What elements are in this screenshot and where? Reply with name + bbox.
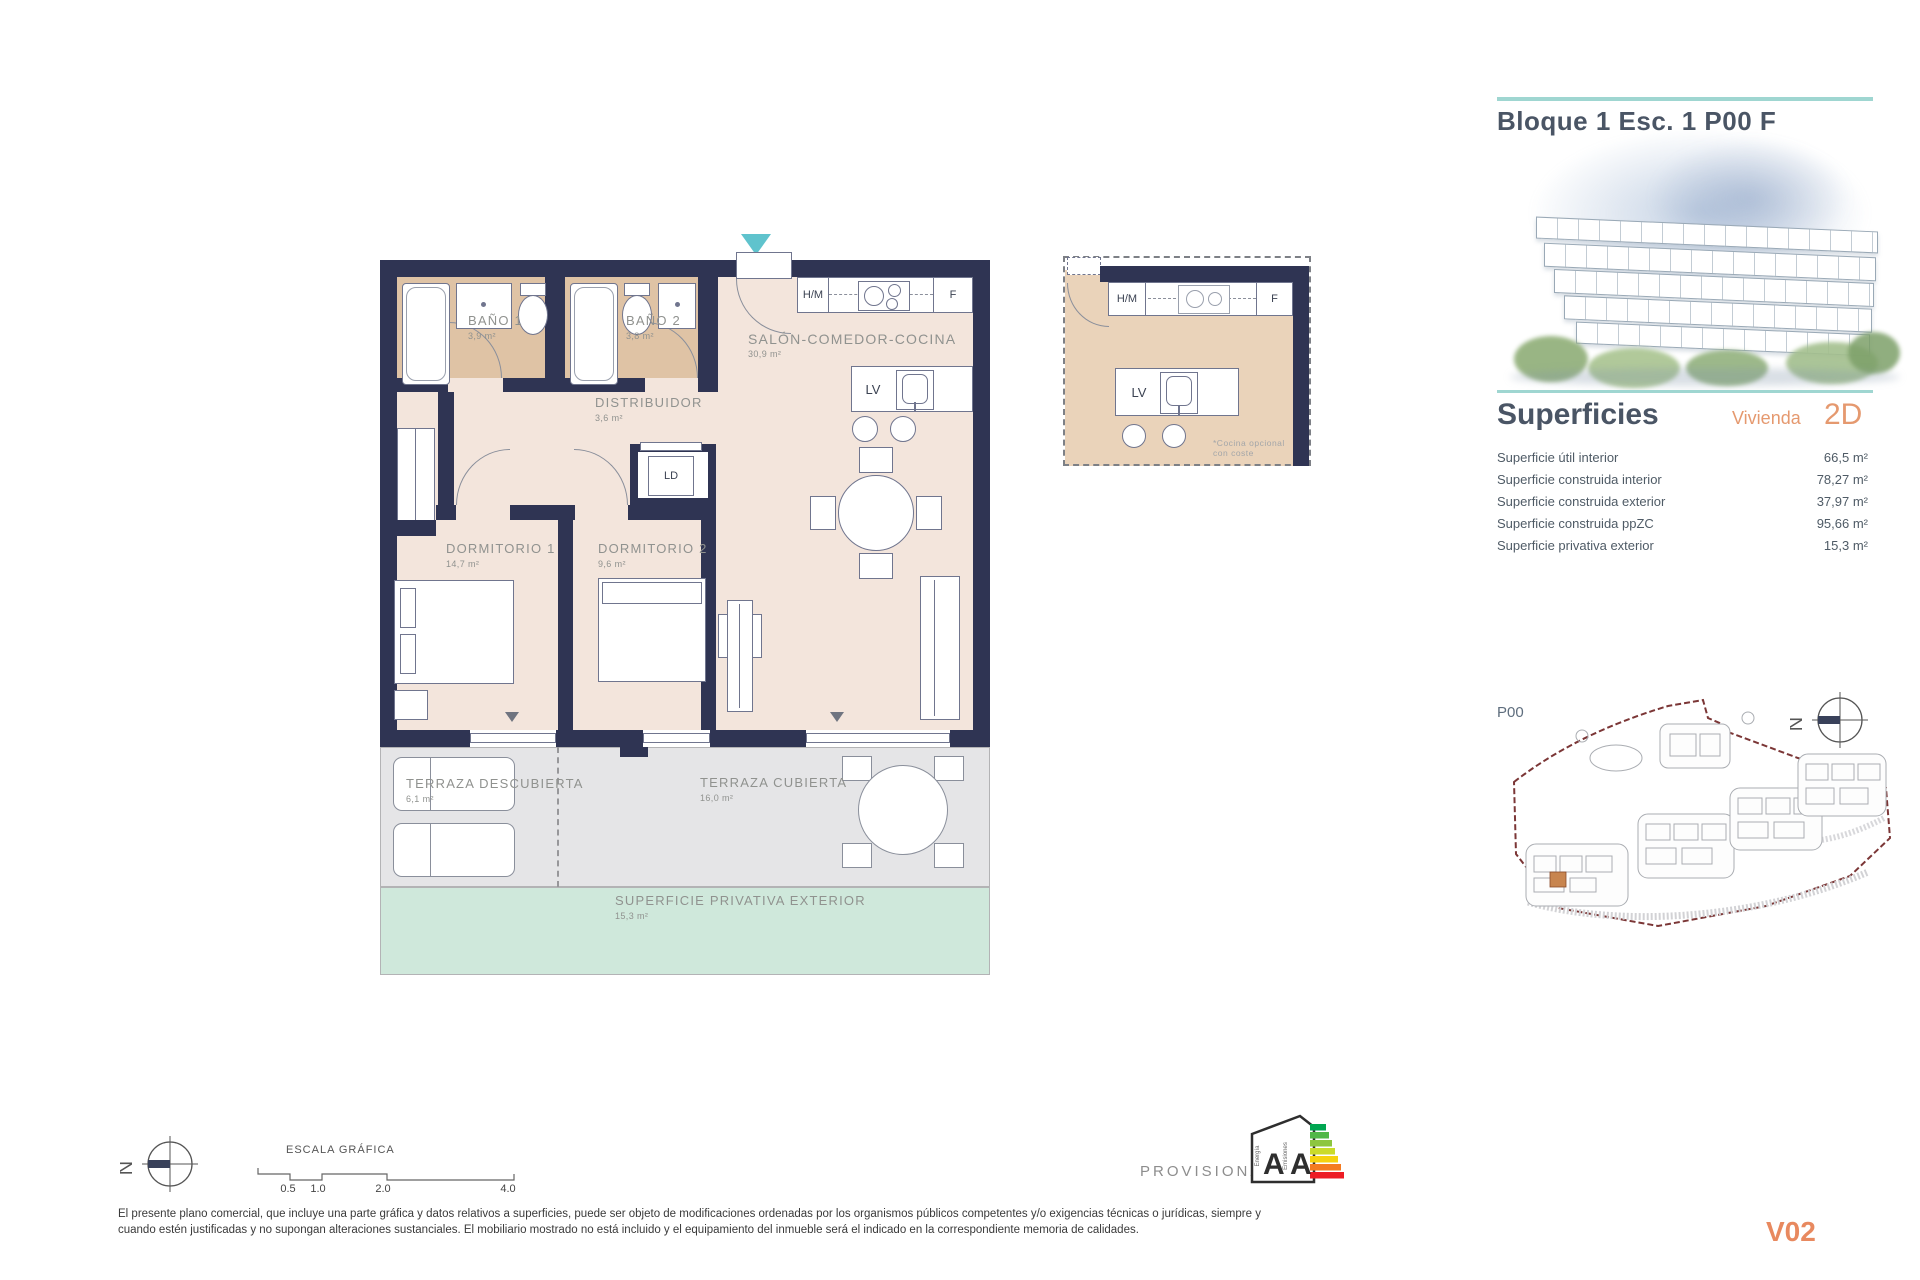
burner bbox=[1208, 292, 1222, 306]
washer-box: LD bbox=[648, 456, 694, 496]
room-name: SALÓN-COMEDOR-COCINA bbox=[748, 332, 956, 346]
superficie-label: Superficie construida interior bbox=[1497, 472, 1662, 494]
scale-tick: 2.0 bbox=[375, 1183, 390, 1195]
room-name: BAÑO 1 bbox=[468, 314, 523, 328]
tv-unit bbox=[727, 600, 753, 712]
chair bbox=[916, 496, 942, 530]
wall bbox=[698, 260, 718, 392]
superficies-row: Superficie privativa exterior 15,3 m² bbox=[1497, 538, 1868, 560]
pillow bbox=[400, 634, 416, 674]
shape bbox=[1670, 734, 1696, 756]
room-name: TERRAZA DESCUBIERTA bbox=[406, 777, 584, 791]
scale-tick: 0.5 bbox=[280, 1183, 295, 1195]
chair bbox=[859, 447, 893, 473]
superficies-rule bbox=[1497, 390, 1873, 393]
wall bbox=[973, 260, 990, 747]
room-label-dormitorio2: DORMITORIO 2 9,6 m² bbox=[598, 542, 708, 571]
terrace-table bbox=[858, 765, 948, 855]
shape bbox=[1766, 798, 1790, 814]
shape bbox=[1700, 734, 1720, 756]
drain-dot bbox=[481, 302, 486, 307]
note-line: con coste bbox=[1213, 448, 1254, 458]
lounger-line bbox=[430, 824, 431, 876]
veg bbox=[1848, 332, 1900, 374]
shape bbox=[258, 1168, 514, 1180]
burner bbox=[888, 284, 901, 297]
wall bbox=[503, 378, 565, 392]
fridge-box: F bbox=[1256, 282, 1293, 316]
plan-sheet: LD H/M F LV bbox=[0, 0, 1920, 1280]
dishwasher-label: LV bbox=[858, 378, 888, 400]
vivienda-code: 2D bbox=[1824, 398, 1862, 432]
fridge-box: F bbox=[933, 277, 973, 313]
note-line: *Cocina opcional bbox=[1213, 438, 1285, 448]
disclaimer-line: El presente plano comercial, que incluye… bbox=[118, 1206, 1158, 1222]
pillar bbox=[620, 747, 648, 757]
shape bbox=[1310, 1164, 1341, 1171]
energy-axis-label: Energía bbox=[1255, 1145, 1261, 1167]
shape bbox=[1682, 848, 1712, 864]
wall bbox=[380, 730, 470, 747]
shape bbox=[1646, 824, 1670, 840]
superficie-value: 37,97 m² bbox=[1817, 494, 1868, 516]
energy-certificate-icon: Energía A Emisiones A bbox=[1244, 1110, 1348, 1188]
highlighted-unit bbox=[1550, 872, 1566, 887]
shape bbox=[1818, 716, 1840, 724]
shape bbox=[1858, 764, 1880, 780]
shape bbox=[1742, 712, 1754, 724]
tv-unit-line bbox=[739, 604, 740, 708]
entrance-door bbox=[736, 252, 792, 279]
window bbox=[643, 733, 710, 743]
oven-microwave-box: H/M bbox=[797, 277, 829, 313]
chair bbox=[934, 756, 964, 781]
wall bbox=[556, 730, 643, 747]
scale-tick: 1.0 bbox=[310, 1183, 325, 1195]
room-label-dormitorio1: DORMITORIO 1 14,7 m² bbox=[446, 542, 556, 571]
wall bbox=[436, 505, 456, 520]
wall bbox=[510, 505, 575, 520]
stool bbox=[1122, 424, 1146, 448]
room-name: DORMITORIO 2 bbox=[598, 542, 708, 556]
marker-icon bbox=[830, 712, 844, 722]
shape bbox=[1798, 754, 1886, 816]
superficie-value: 95,66 m² bbox=[1817, 516, 1868, 538]
north-compass-icon: N bbox=[120, 1132, 204, 1196]
pillow bbox=[602, 582, 702, 604]
title-rule bbox=[1497, 97, 1873, 101]
burner bbox=[1186, 290, 1204, 308]
kitchen-option-note: *Cocina opcional con coste bbox=[1213, 438, 1291, 458]
island-sink-basin bbox=[902, 374, 928, 404]
shape bbox=[1738, 822, 1768, 838]
room-label-distribuidor: DISTRIBUIDOR 3,6 m² bbox=[595, 396, 703, 425]
sofa bbox=[920, 576, 960, 720]
room-area: 30,9 m² bbox=[748, 347, 956, 361]
room-name: DORMITORIO 1 bbox=[446, 542, 556, 556]
sofa-line bbox=[934, 580, 935, 716]
bathtub-inner bbox=[406, 287, 446, 381]
wall bbox=[380, 520, 436, 536]
shape bbox=[1646, 848, 1676, 864]
room-label-terraza-descubierta: TERRAZA DESCUBIERTA 6,1 m² bbox=[406, 777, 584, 806]
toilet-tank bbox=[624, 283, 650, 296]
shape bbox=[1310, 1132, 1329, 1139]
shape bbox=[1702, 824, 1726, 840]
superficie-label: Superficie privativa exterior bbox=[1497, 538, 1654, 560]
chair bbox=[934, 843, 964, 868]
shape bbox=[1310, 1156, 1338, 1163]
wall bbox=[1100, 266, 1308, 282]
superficies-table: Superficie útil interior 66,5 m² Superfi… bbox=[1497, 450, 1868, 560]
wall bbox=[950, 730, 990, 747]
site-compass-icon: N bbox=[1790, 688, 1874, 752]
energy-letter: A bbox=[1290, 1148, 1312, 1181]
shape bbox=[1806, 764, 1828, 780]
superficie-label: Superficie construida ppZC bbox=[1497, 516, 1654, 538]
room-area: 14,7 m² bbox=[446, 557, 556, 571]
shape bbox=[1576, 730, 1588, 742]
scale-tick: 4.0 bbox=[500, 1183, 515, 1195]
room-label-bano2: BAÑO 2 3,8 m² bbox=[626, 314, 681, 343]
oven-microwave-box: H/M bbox=[1108, 282, 1146, 316]
wardrobe-line bbox=[415, 428, 416, 522]
superficies-row: Superficie construida ppZC 95,66 m² bbox=[1497, 516, 1868, 538]
scale-title: ESCALA GRÁFICA bbox=[286, 1144, 395, 1156]
superficie-value: 66,5 m² bbox=[1824, 450, 1868, 472]
room-name: DISTRIBUIDOR bbox=[595, 396, 703, 410]
stool bbox=[852, 416, 878, 442]
room-label-bano1: BAÑO 1 3,9 m² bbox=[468, 314, 523, 343]
stool bbox=[1162, 424, 1186, 448]
superficies-row: Superficie construida interior 78,27 m² bbox=[1497, 472, 1868, 494]
shape bbox=[1310, 1140, 1332, 1147]
superficies-row: Superficie construida exterior 37,97 m² bbox=[1497, 494, 1868, 516]
room-label-privativa: SUPERFICIE PRIVATIVA EXTERIOR 15,3 m² bbox=[615, 894, 866, 923]
ld-closet-doors bbox=[640, 442, 702, 451]
version-label: V02 bbox=[1766, 1216, 1816, 1248]
pillow bbox=[400, 588, 416, 628]
shape bbox=[1570, 878, 1596, 892]
superficie-value: 15,3 m² bbox=[1824, 538, 1868, 560]
shape bbox=[1840, 788, 1868, 804]
stool bbox=[890, 416, 916, 442]
chair bbox=[810, 496, 836, 530]
north-letter: N bbox=[120, 1161, 137, 1175]
shape bbox=[1586, 856, 1612, 872]
room-area: 15,3 m² bbox=[615, 909, 866, 923]
superficie-label: Superficie útil interior bbox=[1497, 450, 1618, 472]
room-name: TERRAZA CUBIERTA bbox=[700, 776, 847, 790]
bathtub-inner bbox=[574, 287, 614, 381]
wall bbox=[558, 520, 573, 730]
superficies-row: Superficie útil interior 66,5 m² bbox=[1497, 450, 1868, 472]
shape bbox=[1534, 856, 1556, 872]
window bbox=[806, 733, 950, 743]
faucet bbox=[914, 402, 916, 412]
room-area: 9,6 m² bbox=[598, 557, 708, 571]
chair bbox=[859, 553, 893, 579]
room-area: 3,9 m² bbox=[468, 329, 523, 343]
door-box bbox=[1067, 257, 1101, 275]
shape bbox=[1310, 1124, 1326, 1131]
dishwasher-label: LV bbox=[1124, 380, 1154, 404]
building-render bbox=[1500, 128, 1908, 390]
room-area: 6,1 m² bbox=[406, 792, 584, 806]
nightstand bbox=[394, 690, 428, 720]
sun-lounger bbox=[393, 823, 515, 877]
room-area: 3,6 m² bbox=[595, 411, 703, 425]
marker-icon bbox=[505, 712, 519, 722]
room-label-salon: SALÓN-COMEDOR-COCINA 30,9 m² bbox=[748, 332, 956, 361]
shape bbox=[1590, 745, 1642, 771]
energy-axis-label: Emisiones bbox=[1283, 1142, 1289, 1170]
room-label-terraza-cubierta: TERRAZA CUBIERTA 16,0 m² bbox=[700, 776, 847, 805]
burner bbox=[886, 298, 898, 310]
wall bbox=[792, 260, 990, 277]
superficies-title: Superficies bbox=[1497, 398, 1659, 432]
vivienda-label: Vivienda bbox=[1732, 408, 1801, 429]
disclaimer: El presente plano comercial, que incluye… bbox=[118, 1206, 1158, 1238]
blob bbox=[1510, 368, 1900, 386]
dining-table bbox=[838, 475, 914, 551]
shape bbox=[1310, 1148, 1335, 1155]
shape bbox=[1774, 822, 1804, 838]
wall bbox=[1293, 266, 1309, 466]
room-name: BAÑO 2 bbox=[626, 314, 681, 328]
scale-bar: 0.5 1.0 2.0 4.0 bbox=[256, 1158, 526, 1198]
wall bbox=[438, 392, 454, 520]
terrace-divider bbox=[557, 747, 559, 887]
shape bbox=[1560, 856, 1582, 872]
superficie-label: Superficie construida exterior bbox=[1497, 494, 1665, 516]
superficie-value: 78,27 m² bbox=[1817, 472, 1868, 494]
wall bbox=[545, 260, 565, 392]
toilet-tank bbox=[520, 283, 546, 296]
shape bbox=[1738, 798, 1762, 814]
wall bbox=[710, 730, 806, 747]
disclaimer-line: cuando estén justificadas y no supongan … bbox=[118, 1222, 1158, 1238]
shape bbox=[1674, 824, 1698, 840]
faucet bbox=[1178, 406, 1180, 416]
wardrobe bbox=[397, 428, 435, 522]
shape bbox=[1526, 844, 1628, 906]
drain-dot bbox=[675, 302, 680, 307]
north-letter: N bbox=[1790, 717, 1807, 731]
shape bbox=[1310, 1172, 1344, 1179]
room-name: SUPERFICIE PRIVATIVA EXTERIOR bbox=[615, 894, 866, 908]
room-area: 16,0 m² bbox=[700, 791, 847, 805]
shape bbox=[148, 1160, 170, 1168]
shape bbox=[1832, 764, 1854, 780]
island-sink-basin bbox=[1166, 376, 1192, 406]
chair bbox=[842, 843, 872, 868]
energy-letter: A bbox=[1263, 1148, 1285, 1181]
room-area: 3,8 m² bbox=[626, 329, 681, 343]
window bbox=[470, 733, 556, 743]
burner bbox=[864, 286, 884, 306]
shape bbox=[1806, 788, 1834, 804]
